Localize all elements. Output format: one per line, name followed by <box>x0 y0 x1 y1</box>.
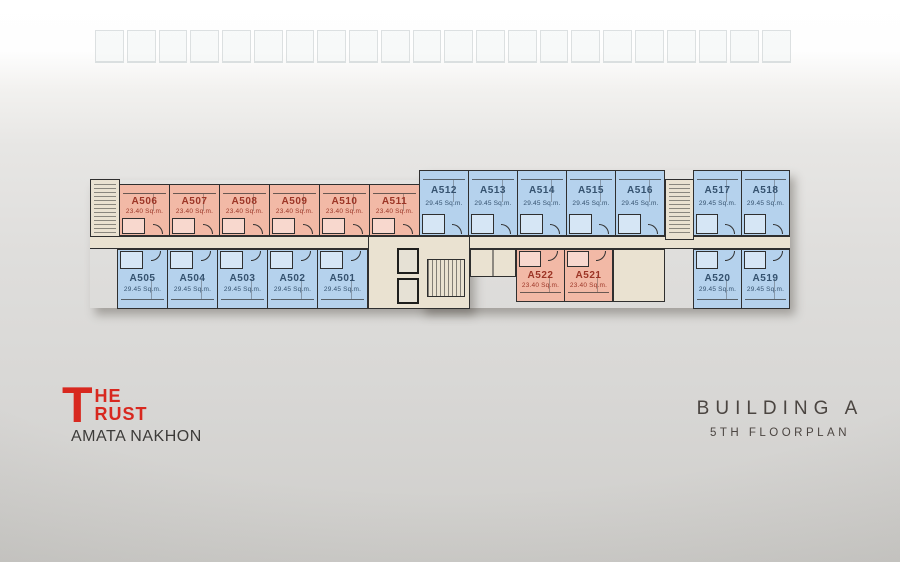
door-swing <box>599 224 609 234</box>
stair-hatch <box>669 184 690 235</box>
logo-he: HE <box>95 387 148 405</box>
unit-A517: A51729.45 Sq.m. <box>693 170 742 236</box>
unit-A513: A51329.45 Sq.m. <box>468 170 518 236</box>
unit-A519: A51929.45 Sq.m. <box>741 249 790 309</box>
bathroom <box>122 218 145 234</box>
unit-A516: A51629.45 Sq.m. <box>615 170 665 236</box>
unit-area: 23.40 Sq.m. <box>270 208 319 215</box>
unit-area: 23.40 Sq.m. <box>565 282 612 289</box>
unit-area: 23.40 Sq.m. <box>320 208 369 215</box>
logo-subtitle: AMATA NAKHON <box>71 428 202 446</box>
bathroom <box>618 214 640 234</box>
door-swing <box>596 251 606 261</box>
elevator-shaft <box>397 248 419 274</box>
title-block: BUILDING A 5TH FLOORPLAN <box>690 398 870 439</box>
unit-label: A503 <box>218 273 267 284</box>
door-swing <box>452 224 462 234</box>
unit-A505: A50529.45 Sq.m. <box>117 249 168 309</box>
unit-row-bottom-right-end: A52029.45 Sq.m.A51929.45 Sq.m. <box>694 249 790 309</box>
logo-big-t: T <box>62 386 93 425</box>
door-swing <box>301 251 311 261</box>
brand-logo: THERUST AMATA NAKHON <box>62 386 202 446</box>
door-swing <box>773 251 783 261</box>
door-swing <box>201 251 211 261</box>
bathroom <box>696 214 718 234</box>
unit-label: A518 <box>742 185 789 196</box>
stairwell-west <box>90 179 120 240</box>
service-area-east <box>613 249 665 302</box>
unit-area: 23.40 Sq.m. <box>170 208 219 215</box>
floorplan-subtitle: 5TH FLOORPLAN <box>690 427 870 439</box>
unit-A506: A50623.40 Sq.m. <box>119 184 170 236</box>
unit-area: 29.45 Sq.m. <box>742 286 789 293</box>
door-swing <box>253 224 263 234</box>
bathroom <box>569 214 591 234</box>
logo-rust: RUST <box>95 405 148 423</box>
door-swing <box>548 251 558 261</box>
unit-label: A507 <box>170 196 219 207</box>
unit-area: 23.40 Sq.m. <box>220 208 269 215</box>
bathroom <box>422 214 444 234</box>
unit-label: A521 <box>565 270 612 281</box>
door-swing <box>351 251 361 261</box>
unit-label: A504 <box>168 273 217 284</box>
door-swing <box>251 251 261 261</box>
unit-A514: A51429.45 Sq.m. <box>517 170 567 236</box>
unit-label: A501 <box>318 273 367 284</box>
unit-label: A511 <box>370 196 419 207</box>
bathroom <box>567 251 589 267</box>
poster-background: { "logo": { "t": "T", "he": "HE", "rust"… <box>0 0 900 562</box>
unit-label: A505 <box>118 273 167 284</box>
core-staircase <box>427 259 465 297</box>
unit-row-top-left: A50623.40 Sq.m.A50723.40 Sq.m.A50823.40 … <box>120 184 420 236</box>
door-swing <box>303 224 313 234</box>
unit-row-top-right-end: A51729.45 Sq.m.A51829.45 Sq.m. <box>694 170 790 236</box>
door-swing <box>725 251 735 261</box>
bathroom <box>120 251 143 269</box>
unit-area: 29.45 Sq.m. <box>567 200 615 207</box>
bathroom <box>270 251 293 269</box>
unit-label: A509 <box>270 196 319 207</box>
unit-A521: A52123.40 Sq.m. <box>564 249 613 302</box>
unit-label: A513 <box>469 185 517 196</box>
bathroom <box>220 251 243 269</box>
unit-area: 23.40 Sq.m. <box>120 208 169 215</box>
unit-A509: A50923.40 Sq.m. <box>269 184 320 236</box>
unit-row-bottom-left: A50529.45 Sq.m.A50429.45 Sq.m.A50329.45 … <box>118 249 368 309</box>
unit-A507: A50723.40 Sq.m. <box>169 184 220 236</box>
unit-area: 23.40 Sq.m. <box>370 208 419 215</box>
stairwell-east <box>665 179 694 240</box>
unit-area: 29.45 Sq.m. <box>616 200 664 207</box>
bathroom <box>520 214 542 234</box>
unit-area: 29.45 Sq.m. <box>420 200 468 207</box>
unit-label: A512 <box>420 185 468 196</box>
unit-label: A510 <box>320 196 369 207</box>
bathroom <box>322 218 345 234</box>
elevator-core <box>368 236 470 309</box>
unit-area: 29.45 Sq.m. <box>218 286 267 293</box>
unit-A510: A51023.40 Sq.m. <box>319 184 370 236</box>
unit-area: 29.45 Sq.m. <box>168 286 217 293</box>
unit-label: A516 <box>616 185 664 196</box>
unit-A504: A50429.45 Sq.m. <box>167 249 218 309</box>
unit-area: 29.45 Sq.m. <box>518 200 566 207</box>
bathroom <box>222 218 245 234</box>
unit-label: A502 <box>268 273 317 284</box>
stair-hatch <box>94 184 116 235</box>
bathroom <box>696 251 718 269</box>
door-swing <box>773 224 783 234</box>
bathroom <box>272 218 295 234</box>
unit-area: 23.40 Sq.m. <box>517 282 564 289</box>
unit-area: 29.45 Sq.m. <box>694 286 741 293</box>
unit-A512: A51229.45 Sq.m. <box>419 170 469 236</box>
bathroom <box>170 251 193 269</box>
unit-A501: A50129.45 Sq.m. <box>317 249 368 309</box>
unit-label: A514 <box>518 185 566 196</box>
unit-area: 29.45 Sq.m. <box>742 200 789 207</box>
bathroom <box>519 251 541 267</box>
ghost-floorplan-strip <box>95 30 791 63</box>
door-swing <box>648 224 658 234</box>
unit-A520: A52029.45 Sq.m. <box>693 249 742 309</box>
unit-A503: A50329.45 Sq.m. <box>217 249 268 309</box>
unit-label: A520 <box>694 273 741 284</box>
unit-A502: A50229.45 Sq.m. <box>267 249 318 309</box>
door-swing <box>403 224 413 234</box>
bathroom <box>372 218 395 234</box>
door-swing <box>153 224 163 234</box>
bathroom <box>744 251 766 269</box>
unit-A511: A51123.40 Sq.m. <box>369 184 420 236</box>
unit-row-bottom-mid: A52223.40 Sq.m.A52123.40 Sq.m. <box>517 249 613 302</box>
unit-label: A508 <box>220 196 269 207</box>
unit-row-top-right: A51229.45 Sq.m.A51329.45 Sq.m.A51429.45 … <box>420 170 665 236</box>
unit-A515: A51529.45 Sq.m. <box>566 170 616 236</box>
unit-area: 29.45 Sq.m. <box>318 286 367 293</box>
building-title: BUILDING A <box>690 398 870 420</box>
unit-area: 29.45 Sq.m. <box>469 200 517 207</box>
unit-A518: A51829.45 Sq.m. <box>741 170 790 236</box>
unit-area: 29.45 Sq.m. <box>268 286 317 293</box>
door-swing <box>151 251 161 261</box>
unit-label: A517 <box>694 185 741 196</box>
door-swing <box>725 224 735 234</box>
door-swing <box>501 224 511 234</box>
unit-label: A522 <box>517 270 564 281</box>
unit-label: A506 <box>120 196 169 207</box>
unit-label: A519 <box>742 273 789 284</box>
door-swing <box>353 224 363 234</box>
elevator-shaft <box>397 278 419 304</box>
unit-label: A515 <box>567 185 615 196</box>
unit-A508: A50823.40 Sq.m. <box>219 184 270 236</box>
vignette-overlay <box>0 90 900 562</box>
unit-A522: A52223.40 Sq.m. <box>516 249 565 302</box>
unit-area: 29.45 Sq.m. <box>118 286 167 293</box>
bathroom <box>320 251 343 269</box>
bathroom <box>744 214 766 234</box>
door-swing <box>203 224 213 234</box>
unit-area: 29.45 Sq.m. <box>694 200 741 207</box>
door-swing <box>550 224 560 234</box>
utility-rooms <box>470 249 516 277</box>
bathroom <box>471 214 493 234</box>
bathroom <box>172 218 195 234</box>
